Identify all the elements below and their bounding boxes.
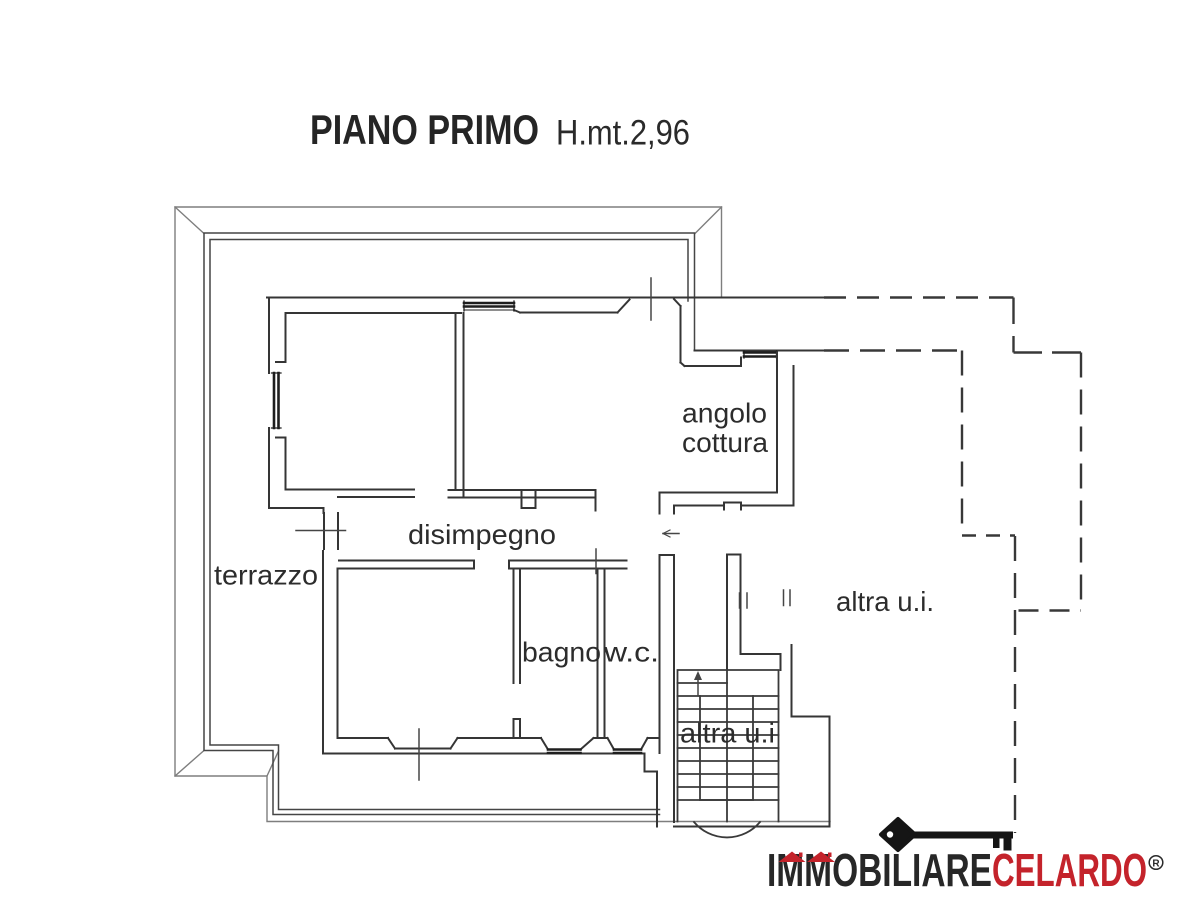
svg-text:bagno: bagno	[522, 637, 601, 668]
svg-text:H.mt.2,96: H.mt.2,96	[556, 114, 690, 153]
svg-text:cottura: cottura	[682, 427, 768, 458]
svg-text:CELARDO: CELARDO	[992, 844, 1147, 896]
svg-text:IMMOBILIARE: IMMOBILIARE	[767, 844, 992, 896]
svg-text:w.c.: w.c.	[603, 637, 659, 668]
svg-text:altra u.i: altra u.i	[680, 718, 775, 749]
svg-text:disimpegno: disimpegno	[408, 519, 556, 550]
svg-text:altra u.i.: altra u.i.	[836, 586, 934, 617]
svg-text:angolo: angolo	[682, 398, 767, 429]
svg-text:terrazzo: terrazzo	[214, 560, 318, 591]
svg-text:R: R	[1152, 859, 1160, 870]
svg-text:PIANO PRIMO: PIANO PRIMO	[310, 106, 539, 153]
